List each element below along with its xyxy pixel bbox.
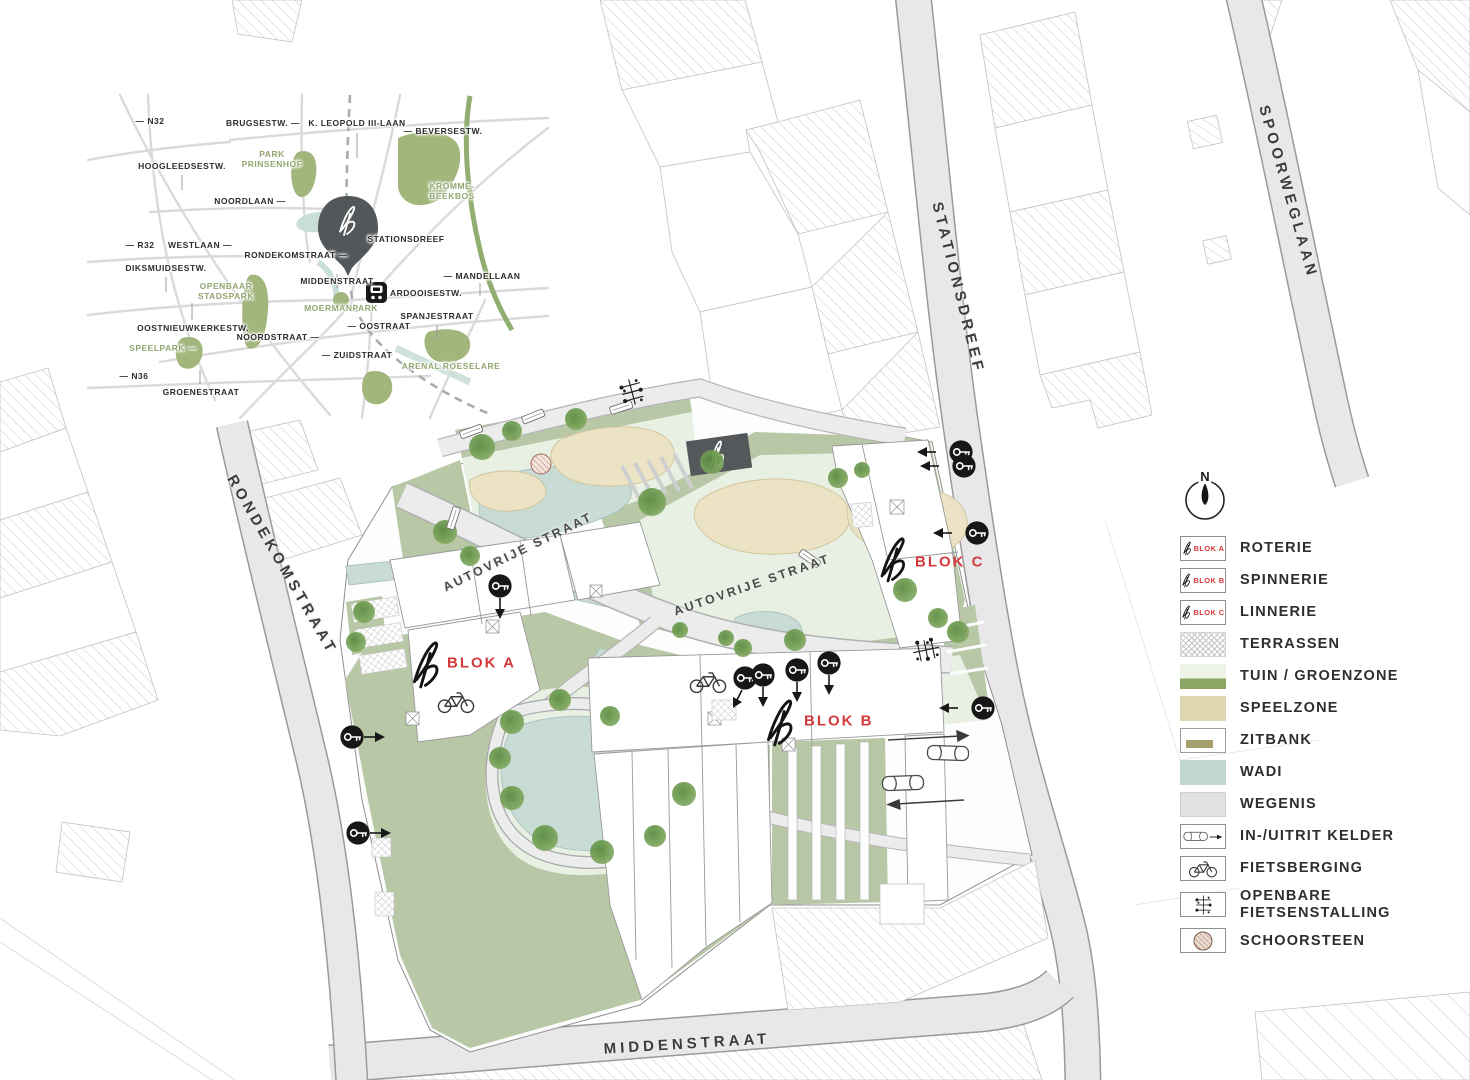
inset-label: — ZUIDSTRAAT: [322, 351, 393, 361]
inset-label: GROENESTRAAT: [163, 388, 240, 398]
inset-label: RONDEKOMSTRAAT —: [244, 251, 347, 261]
inset-label: — R32: [126, 241, 155, 251]
legend-label: SPINNERIE: [1240, 572, 1329, 589]
north-arrow: N: [1181, 472, 1229, 528]
inset-label: SPEELPARK —: [129, 344, 197, 354]
label-blok-a: BLOK A: [447, 655, 516, 672]
garage-ramp-icon: [1180, 824, 1226, 849]
inset-label: — OOSTRAAT: [348, 322, 411, 332]
inset-label: MIDDENSTRAAT: [300, 277, 373, 287]
inset-label: SPANJESTRAAT: [400, 312, 473, 322]
inset-label: DIKSMUIDSESTW.: [125, 264, 206, 274]
wadi-swatch-icon: [1180, 760, 1226, 785]
inset-label: WESTLAAN —: [168, 241, 232, 251]
legend-label: SPEELZONE: [1240, 700, 1339, 717]
inset-label: OPENBAAR STADSPARK: [184, 282, 268, 302]
legend-row-tuin-groenzone: TUIN / GROENZONE: [1180, 664, 1470, 689]
legend-label: LINNERIE: [1240, 604, 1317, 621]
chimney-symbol: [531, 454, 551, 474]
inset-label: — BEVERSESTW.: [404, 127, 483, 137]
inset-label: ARDOOISESTW.: [390, 289, 462, 299]
inset-label: — N32: [136, 117, 165, 127]
legend-row-roterie: BLOK A ROTERIE: [1180, 536, 1470, 561]
legend-label: SCHOORSTEEN: [1240, 933, 1365, 950]
legend-row-linnerie: BLOK C LINNERIE: [1180, 600, 1470, 625]
legend-row-wadi: WADI: [1180, 760, 1470, 785]
legend-row-schoorsteen: SCHOORSTEEN: [1180, 928, 1470, 953]
label-blok-c: BLOK C: [915, 554, 985, 571]
north-letter: N: [1198, 469, 1211, 484]
legend-row-speelzone: SPEELZONE: [1180, 696, 1470, 721]
terrassen-swatch-icon: [1180, 632, 1226, 657]
legend-row-wegenis: WEGENIS: [1180, 792, 1470, 817]
legend-label: OPENBARE FIETSENSTALLING: [1240, 888, 1380, 921]
legend-label: ZITBANK: [1240, 732, 1312, 749]
bicycle-icon: [1180, 856, 1226, 881]
inset-label: PARK PRINSENHOF: [236, 150, 308, 170]
legend: BLOK A ROTERIE BLOK B SPINNERIE BLOK C L…: [1180, 536, 1470, 960]
blok-a-chip-icon: BLOK A: [1180, 536, 1226, 561]
inset-label: K. LEOPOLD III-LAAN: [308, 119, 405, 129]
wegenis-swatch-icon: [1180, 792, 1226, 817]
inset-label: BRUGSESTW. —: [226, 119, 300, 129]
inset-label: NOORDSTRAAT —: [237, 333, 320, 343]
inset-label: — MANDELLAAN: [444, 272, 521, 282]
site-area: [340, 377, 1048, 1052]
speelzone-swatch-icon: [1180, 696, 1226, 721]
legend-label: TERRASSEN: [1240, 636, 1340, 653]
blok-c-chip-icon: BLOK C: [1180, 600, 1226, 625]
inset-label: HOOGLEEDSESTW.: [138, 162, 226, 172]
site-plan-page: { "colors": { "accent_red": "#d23a3c", "…: [0, 0, 1470, 1080]
inset-label: KROMME- BEEKBOS: [419, 182, 485, 202]
inset-label: STATIONSDREEF: [367, 235, 444, 245]
legend-label: IN-/UITRIT KELDER: [1240, 828, 1394, 845]
inset-label: OOSTNIEUWKERKESTW.: [137, 324, 249, 334]
inset-label: — N36: [120, 372, 149, 382]
legend-label: FIETSBERGING: [1240, 860, 1363, 877]
inset-label: MOERMANPARK: [304, 304, 378, 314]
legend-label: TUIN / GROENZONE: [1240, 668, 1399, 685]
chip-label: BLOK C: [1193, 608, 1224, 617]
legend-row-spinnerie: BLOK B SPINNERIE: [1180, 568, 1470, 593]
bike-rack-icon: [1180, 892, 1226, 917]
legend-row-fietsberging: FIETSBERGING: [1180, 856, 1470, 881]
inset-label: NOORDLAAN —: [214, 197, 286, 207]
zitbank-swatch-icon: [1180, 728, 1226, 753]
legend-label: WEGENIS: [1240, 796, 1317, 813]
legend-row-openbare-fietsenstalling: OPENBARE FIETSENSTALLING: [1180, 888, 1470, 921]
chimney-icon: [1180, 928, 1226, 953]
inset-label: ARENAL ROESELARE: [402, 362, 501, 372]
label-blok-b: BLOK B: [804, 713, 874, 730]
legend-row-terrassen: TERRASSEN: [1180, 632, 1470, 657]
legend-row-zitbank: ZITBANK: [1180, 728, 1470, 753]
legend-label: ROTERIE: [1240, 540, 1313, 557]
legend-label: WADI: [1240, 764, 1283, 781]
tuin-groenzone-swatch-icon: [1180, 664, 1226, 689]
legend-row-inuitrit-kelder: IN-/UITRIT KELDER: [1180, 824, 1470, 849]
chip-label: BLOK B: [1193, 576, 1224, 585]
blok-b-chip-icon: BLOK B: [1180, 568, 1226, 593]
chip-label: BLOK A: [1194, 544, 1225, 553]
